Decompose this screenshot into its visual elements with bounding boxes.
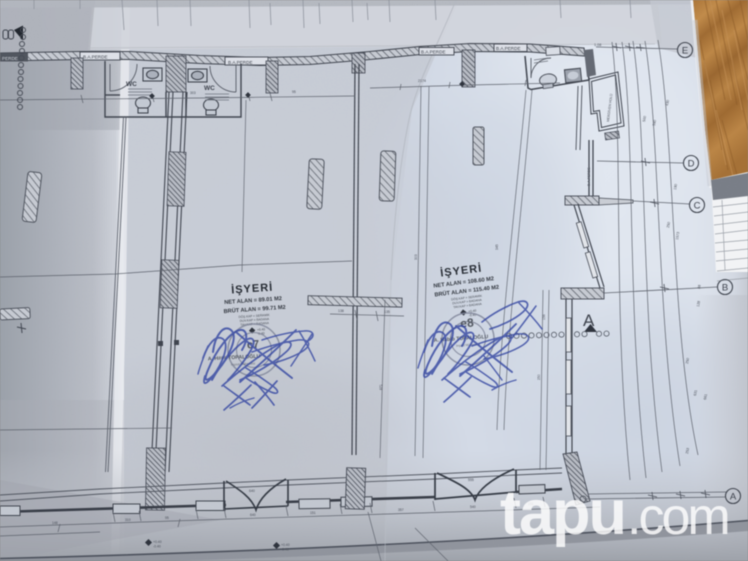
svg-text:.com: .com: [627, 488, 728, 546]
svg-text:tapu: tapu: [500, 478, 625, 548]
